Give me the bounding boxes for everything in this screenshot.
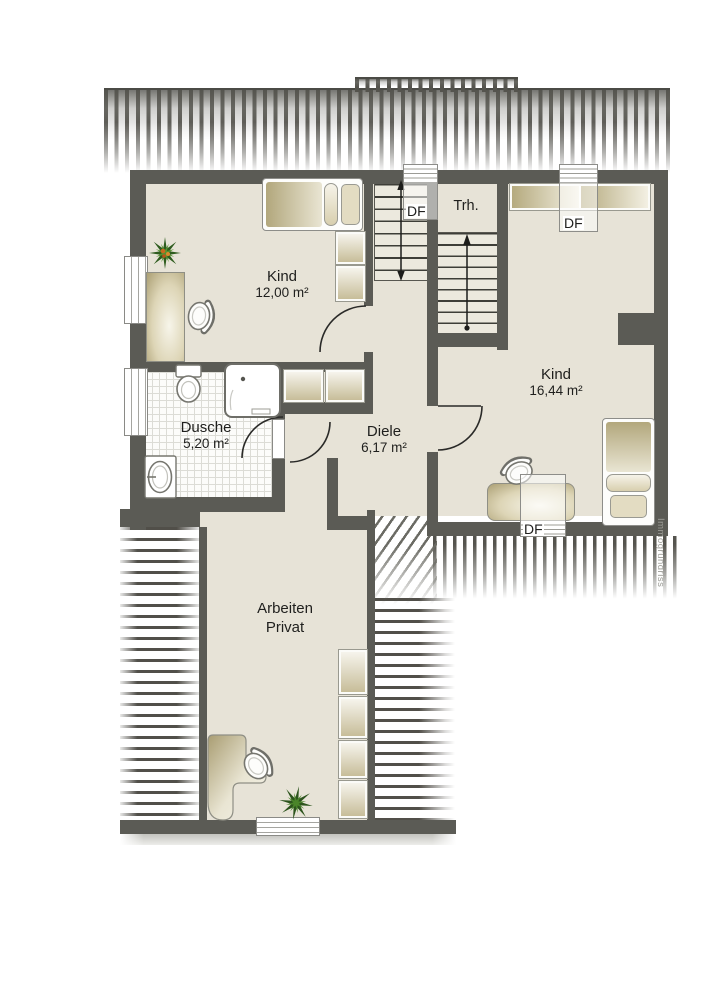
wall-segment — [497, 184, 508, 350]
room-label-kind-large: Kind — [541, 367, 571, 382]
room-area-dusche: 5,20 m² — [183, 437, 229, 451]
shelf — [339, 697, 367, 738]
roof-window-label: DF — [563, 216, 584, 230]
bed — [602, 418, 655, 526]
room-label-diele: Diele — [367, 424, 401, 439]
roof-hatch-left-band — [120, 527, 199, 834]
shelf — [284, 370, 323, 402]
room-label-arbeiten-2: Privat — [266, 620, 304, 635]
wall-segment — [427, 333, 508, 347]
wall-segment — [427, 347, 438, 406]
room-label-dusche: Dusche — [181, 420, 232, 435]
roof-hatch-below-kind — [433, 536, 677, 602]
shelf — [339, 741, 367, 778]
shelf — [326, 370, 364, 402]
roof-hatch-top — [104, 88, 670, 174]
window — [256, 817, 320, 836]
wall-segment — [364, 184, 373, 306]
room-area-kind-small: 12,00 m² — [255, 286, 308, 300]
room-label-arbeiten: Arbeiten — [257, 601, 313, 616]
wall-segment — [130, 170, 146, 530]
roof-hatch-right-band — [375, 598, 455, 820]
roof-window-df-top-right: DF — [559, 164, 598, 232]
room-area-diele: 6,17 m² — [361, 441, 407, 455]
roof-hatch-top-raised — [355, 77, 518, 92]
shelf — [336, 266, 365, 301]
wall-segment — [199, 527, 207, 825]
wall-segment — [654, 170, 668, 530]
window — [124, 256, 148, 324]
wall-segment — [282, 402, 364, 414]
stair-flight-up — [438, 233, 497, 333]
stairwell-label: Trh. — [453, 199, 478, 214]
shelf — [336, 232, 365, 264]
shelf — [339, 781, 367, 818]
room-label-kind-small: Kind — [267, 269, 297, 284]
roof-window-label: DF — [406, 204, 427, 218]
roof-window-df-stair: DF — [403, 164, 438, 220]
bed — [262, 178, 363, 231]
roof-window-label: DF — [523, 522, 544, 536]
wall-segment — [120, 509, 200, 527]
desk — [146, 272, 185, 362]
room-area-kind-large: 16,44 m² — [529, 384, 582, 398]
floor-plan: DF DF DF Kind 12,00 m² Kind 16,44 m² Dus… — [0, 0, 706, 1000]
roof-window-df-bottom: DF — [520, 474, 566, 537]
wall-segment — [367, 510, 375, 825]
shelf — [339, 650, 367, 694]
watermark-label: Immogrundriss — [655, 518, 666, 587]
wall-segment — [618, 313, 654, 345]
window — [124, 368, 148, 436]
door-leaf-dusche — [272, 419, 285, 459]
wall-segment — [427, 452, 438, 522]
